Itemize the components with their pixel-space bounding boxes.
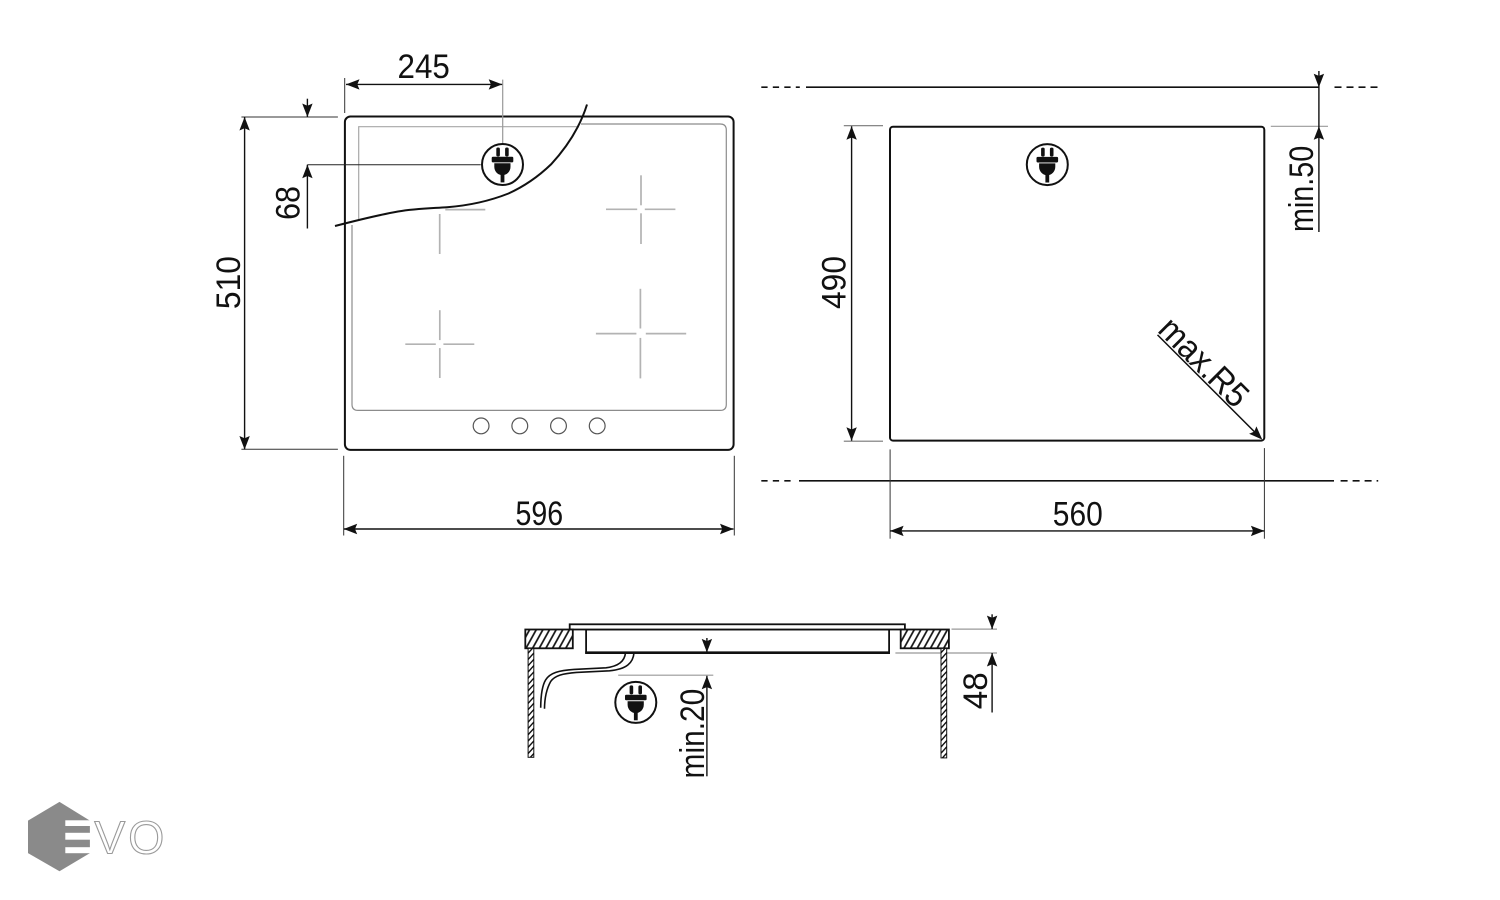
svg-text:VO: VO (94, 811, 167, 863)
svg-text:490: 490 (815, 256, 853, 309)
svg-text:245: 245 (398, 48, 450, 86)
svg-text:48: 48 (957, 672, 995, 709)
svg-text:596: 596 (516, 495, 564, 533)
svg-text:68: 68 (269, 186, 307, 220)
svg-text:min.50: min.50 (1283, 146, 1321, 232)
svg-text:510: 510 (210, 256, 248, 309)
svg-text:min.20: min.20 (674, 689, 712, 779)
svg-text:560: 560 (1053, 496, 1103, 534)
